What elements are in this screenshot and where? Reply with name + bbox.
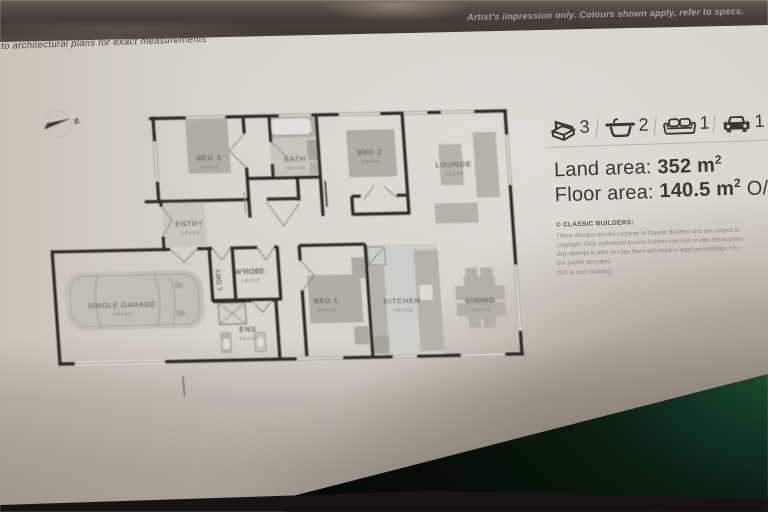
svg-text:BED 1: BED 1 [313,296,338,306]
svg-text:3.9 x 5.8: 3.9 x 5.8 [113,311,132,317]
svg-text:N: N [71,117,81,126]
svg-text:BED 2: BED 2 [357,148,382,158]
svg-text:3.0 x 2.0: 3.0 x 2.0 [286,165,305,171]
svg-text:LOUNGE: LOUNGE [435,160,472,170]
svg-text:BED 3: BED 3 [196,153,221,163]
svg-text:3.6 x 3.0: 3.6 x 3.0 [361,159,380,165]
svg-text:ENS: ENS [239,325,257,334]
svg-text:SINGLE GARAGE: SINGLE GARAGE [88,300,157,310]
svg-text:3.0 x 3.0: 3.0 x 3.0 [200,164,219,170]
svg-text:ENTRY: ENTRY [175,219,204,229]
svg-text:1.9 x 2.9: 1.9 x 2.9 [471,306,490,312]
svg-text:3.9 x 3.2: 3.9 x 3.2 [317,307,336,313]
svg-text:DINING: DINING [465,295,495,305]
svg-text:3.8 x 2.8: 3.8 x 2.8 [393,307,412,313]
svg-text:KITCHEN: KITCHEN [383,296,421,306]
svg-text:BATH: BATH [284,154,306,163]
svg-text:1.2 x 1.9: 1.2 x 1.9 [181,230,200,236]
svg-text:1.6 x 1.4: 1.6 x 1.4 [241,277,260,283]
svg-text:4.2 x 4.5: 4.2 x 4.5 [445,171,464,177]
svg-text:L'DRY: L'DRY [214,268,225,290]
svg-text:W'ROBE: W'ROBE [234,266,265,276]
svg-text:2.0 x 2.0: 2.0 x 2.0 [239,336,258,342]
